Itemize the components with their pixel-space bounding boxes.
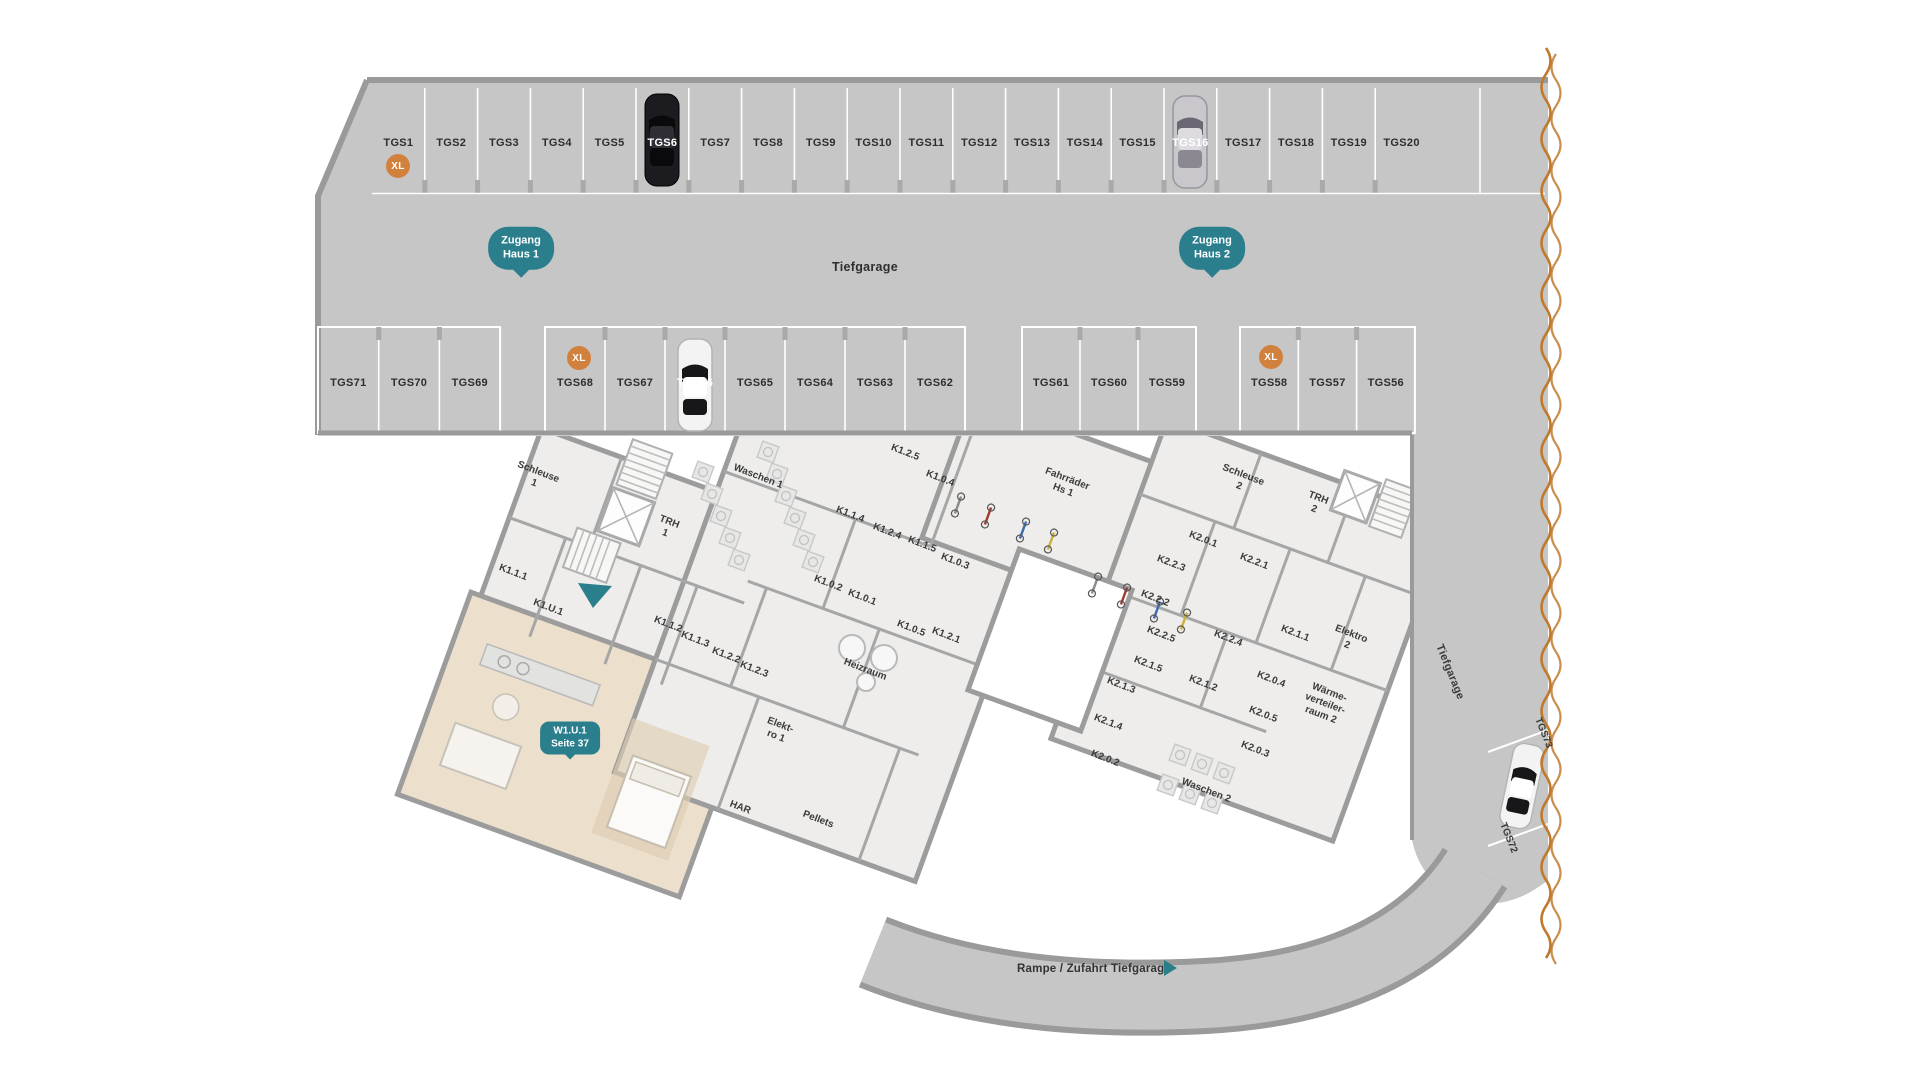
room-label: K1.1.3 [679, 629, 711, 651]
parking-spot-label: TGS63 [857, 377, 893, 389]
room-label: K2.1.1 [1279, 623, 1311, 645]
unit-w1u1-badge[interactable]: W1.U.1 Seite 37 [540, 722, 600, 755]
room-label: K1.1.1 [497, 562, 529, 584]
parking-spot-label: TGS5 [595, 137, 625, 149]
parking-spot-label: TGS67 [617, 377, 653, 389]
room-label: FahrräderHs 1 [1039, 466, 1091, 505]
parking-spot-label: TGS58 [1251, 377, 1287, 389]
room-label: K1.2.2 [710, 645, 742, 667]
parking-spot-label: TGS15 [1119, 137, 1155, 149]
room-label: HAR [728, 799, 752, 818]
room-label: K2.1.2 [1187, 673, 1219, 695]
room-label: K1.2.4 [871, 521, 903, 543]
parking-spot-label: TGS7 [700, 137, 730, 149]
parking-spot-label: TGS11 [909, 137, 945, 149]
parking-spot-label: TGS1 [383, 137, 413, 149]
parking-spot-label: TGS66 [677, 377, 713, 389]
zugang-haus-1-badge[interactable]: Zugang Haus 1 [488, 227, 554, 270]
parking-spot-label: TGS61 [1033, 377, 1069, 389]
zugang-haus-2-badge[interactable]: Zugang Haus 2 [1179, 227, 1245, 270]
ramp-label: Rampe / Zufahrt Tiefgarage [1017, 963, 1171, 975]
zugang-haus-1-line2: Haus 1 [501, 248, 541, 262]
parking-spot-label: TGS10 [855, 137, 891, 149]
room-label: K1.2.3 [738, 659, 770, 681]
parking-spot-label: TGS20 [1383, 137, 1419, 149]
parking-spot-label: TGS73 [1532, 716, 1555, 750]
room-label: K2.2.2 [1139, 588, 1171, 610]
ramp-direction-icon [1164, 960, 1177, 976]
room-label: K2.2.4 [1212, 628, 1244, 650]
room-label: K2.0.3 [1239, 739, 1271, 761]
parking-spot-label: TGS69 [452, 377, 488, 389]
room-label: Schleuse1 [511, 459, 560, 497]
room-label: K2.2.1 [1238, 551, 1270, 573]
zugang-haus-2-line1: Zugang [1192, 234, 1232, 248]
parking-spot-label: TGS17 [1225, 137, 1261, 149]
room-label: K1.0.5 [895, 618, 927, 640]
parking-spot-label: TGS18 [1278, 137, 1314, 149]
room-label: Waschen 2 [1180, 776, 1233, 806]
parking-spot-label: TGS71 [330, 377, 366, 389]
parking-spot-label: TGS16 [1172, 137, 1208, 149]
room-label: K1.U.1 [531, 597, 564, 619]
room-label: K2.0.1 [1187, 529, 1219, 551]
xl-spot-badge: XL [1259, 345, 1283, 369]
unit-badge-line1: W1.U.1 [551, 726, 589, 739]
room-label: Waschen 1 [732, 462, 785, 492]
parking-spot-label: TGS19 [1331, 137, 1367, 149]
parking-spot-label: TGS6 [647, 137, 677, 149]
parking-spot-label: TGS57 [1309, 377, 1345, 389]
parking-spot-label: TGS4 [542, 137, 572, 149]
room-label: K2.1.4 [1092, 712, 1124, 734]
room-label: K1.0.2 [812, 573, 844, 595]
room-label: Elekt-ro 1 [761, 715, 795, 747]
parking-spot-label: TGS2 [436, 137, 466, 149]
parking-spot-label: TGS14 [1067, 137, 1103, 149]
room-label: K1.2.5 [889, 442, 921, 464]
zugang-haus-1-line1: Zugang [501, 234, 541, 248]
parking-spot-label: TGS3 [489, 137, 519, 149]
room-label: Heizraum [842, 656, 888, 683]
parking-spot-label: TGS62 [917, 377, 953, 389]
room-label: K2.1.5 [1132, 654, 1164, 676]
room-label: K2.0.2 [1089, 748, 1121, 770]
room-label: K2.1.3 [1105, 675, 1137, 697]
unit-badge-line2: Seite 37 [551, 738, 589, 751]
zugang-haus-2-line2: Haus 2 [1192, 248, 1232, 262]
room-label: K1.0.4 [924, 468, 956, 490]
room-label: K1.1.5 [906, 534, 938, 556]
room-label: TRH1 [653, 513, 681, 542]
parking-spot-label: TGS12 [961, 137, 997, 149]
parking-spot-label: TGS56 [1368, 377, 1404, 389]
parking-spot-label: TGS68 [557, 377, 593, 389]
parking-spot-label: TGS8 [753, 137, 783, 149]
parking-spot-label: TGS72 [1497, 821, 1520, 855]
room-label: Elektro2 [1329, 623, 1369, 657]
parking-spot-label: TGS64 [797, 377, 833, 389]
parking-spot-label: TGS70 [391, 377, 427, 389]
room-label: K2.0.5 [1247, 704, 1279, 726]
room-label: K1.1.4 [834, 504, 866, 526]
room-label: K2.2.5 [1145, 624, 1177, 646]
xl-spot-badge: XL [567, 346, 591, 370]
room-label: K1.0.3 [939, 551, 971, 573]
room-label: K1.1.2 [652, 614, 684, 636]
labels-layer: Tiefgarage Tiefgarage Rampe / Zufahrt Ti… [0, 0, 1920, 1080]
room-label: K1.2.1 [930, 625, 962, 647]
room-label: TRH2 [1302, 489, 1330, 518]
parking-spot-label: TGS13 [1014, 137, 1050, 149]
parking-spot-label: TGS9 [806, 137, 836, 149]
room-label: K2.2.3 [1155, 553, 1187, 575]
floorplan-page: Tiefgarage Tiefgarage Rampe / Zufahrt Ti… [0, 0, 1920, 1080]
room-label: Schleuse2 [1216, 462, 1265, 500]
garage-area-label: Tiefgarage [832, 260, 898, 274]
parking-spot-label: TGS65 [737, 377, 773, 389]
lane-area-label: Tiefgarage [1433, 643, 1466, 702]
parking-spot-label: TGS60 [1091, 377, 1127, 389]
room-label: K1.0.1 [846, 587, 878, 609]
room-label: Wärme-verteiler-raum 2 [1299, 680, 1351, 728]
parking-spot-label: TGS59 [1149, 377, 1185, 389]
room-label: Pellets [801, 809, 835, 832]
room-label: K2.0.4 [1255, 669, 1287, 691]
xl-spot-badge: XL [386, 154, 410, 178]
